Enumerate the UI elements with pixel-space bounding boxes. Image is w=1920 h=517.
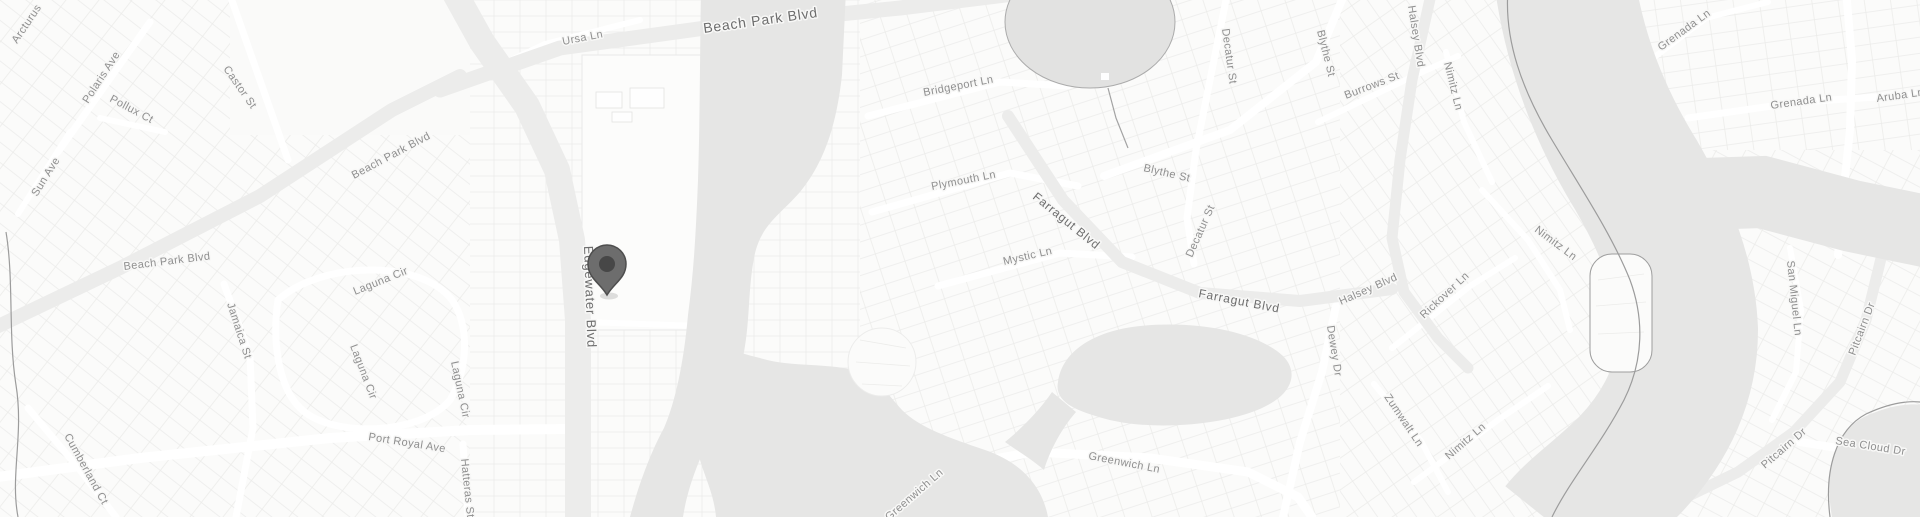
right-lagoon-arm <box>1642 192 1920 232</box>
map-viewport[interactable]: ArcturusPolaris AvePollux CtCastor StSun… <box>0 0 1920 517</box>
map-canvas: ArcturusPolaris AvePollux CtCastor StSun… <box>0 0 1920 517</box>
